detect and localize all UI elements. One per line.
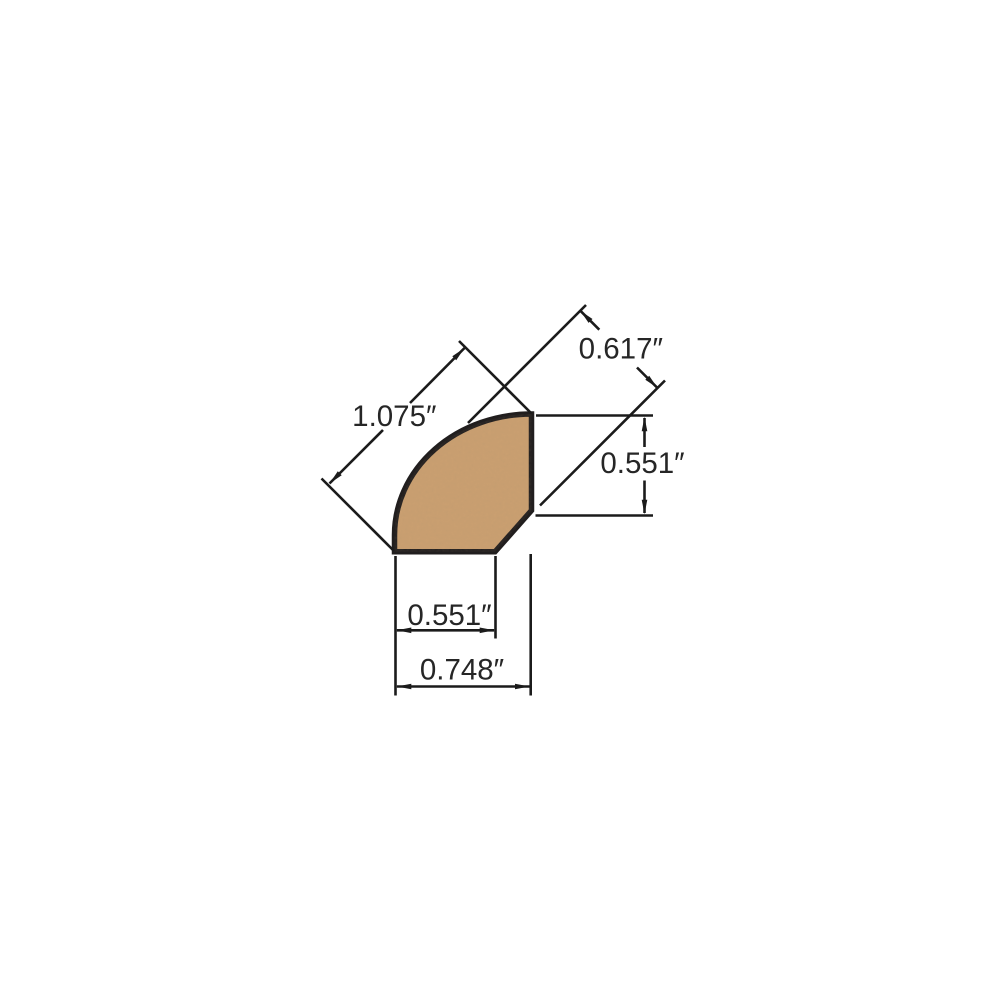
svg-text:0.551″: 0.551″ bbox=[600, 447, 684, 480]
svg-text:0.617″: 0.617″ bbox=[579, 333, 663, 366]
svg-text:0.748″: 0.748″ bbox=[420, 654, 504, 687]
svg-text:0.551″: 0.551″ bbox=[407, 599, 491, 632]
svg-text:1.075″: 1.075″ bbox=[352, 400, 436, 433]
